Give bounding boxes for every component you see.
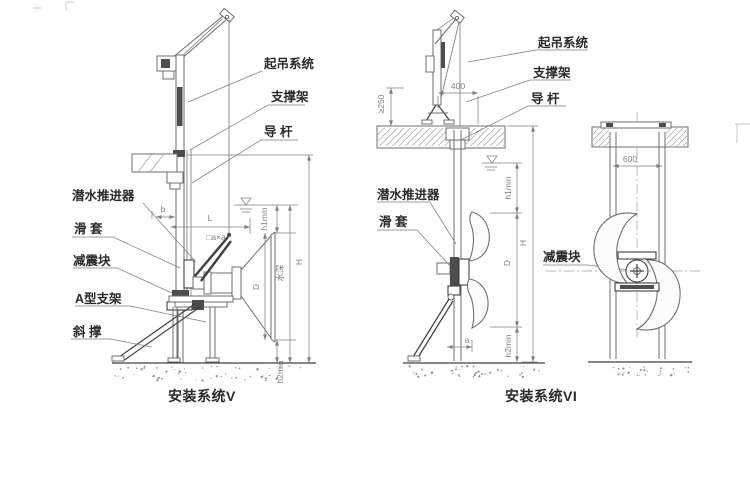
ground-v xyxy=(112,363,316,382)
crane-vi xyxy=(422,10,464,126)
propeller-v xyxy=(193,267,241,299)
caption-system-vi: 安装系统VI xyxy=(505,388,577,404)
dim-D-vi: D xyxy=(502,260,512,266)
ground-vi xyxy=(403,363,545,378)
dim-water-depth: 水深 xyxy=(275,264,285,282)
label-damper-vi: 减震块 xyxy=(543,249,581,264)
label-a-bracket-v: A型支架 xyxy=(75,291,122,306)
dim-h2min-vi: h2min xyxy=(503,334,513,357)
label-lifting-system-vi: 起吊系统 xyxy=(537,35,589,50)
propeller-vi xyxy=(437,212,489,328)
blade-lower-vi xyxy=(468,279,489,328)
dim-ge250: ≥250 xyxy=(376,94,386,113)
dim-D-v: D xyxy=(251,284,261,290)
dim-400: 400 xyxy=(451,81,465,91)
platform-v xyxy=(132,154,183,189)
label-guide-rod-v: 导 杆 xyxy=(264,124,293,139)
label-sleeve-vi: 滑 套 xyxy=(379,214,408,229)
brace-vi xyxy=(408,286,460,361)
system-v-drawing: b L □a×a h1min D 水深 H h2min 起吊系统 支撑架 导 杆… xyxy=(71,8,316,404)
label-brace-v: 斜 撑 xyxy=(72,324,102,339)
label-sleeve-v: 滑 套 xyxy=(74,221,103,236)
blade-upper-vi xyxy=(469,212,489,261)
sliding-sleeve-vi xyxy=(450,257,459,286)
caption-system-v: 安装系统V xyxy=(168,388,236,404)
dim-L: L xyxy=(208,213,213,223)
label-propeller-vi: 潜水推进器 xyxy=(377,187,440,202)
water-surface-vi xyxy=(482,156,522,170)
drawing-page: b L □a×a h1min D 水深 H h2min 起吊系统 支撑架 导 杆… xyxy=(0,0,750,480)
system-vi-drawing: 400 ≥250 h1min D h2min H a 起吊系统 支撑架 导 杆 … xyxy=(360,10,701,404)
dim-h1min-vi: h1min xyxy=(503,176,513,199)
label-support-frame-v: 支撑架 xyxy=(270,89,309,104)
dim-H-vi: H xyxy=(518,240,528,246)
dim-H-v: H xyxy=(294,259,304,265)
label-propeller-v: 潜水推进器 xyxy=(72,188,135,203)
dim-h1min-v: h1min xyxy=(259,207,269,230)
dim-600: 600 xyxy=(623,154,637,164)
rod-mount-bracket xyxy=(446,128,469,140)
winch-vi xyxy=(441,42,445,68)
label-lifting-system-v: 起吊系统 xyxy=(263,56,315,71)
front-view-vi: 600 xyxy=(546,112,701,376)
label-support-frame-vi: 支撑架 xyxy=(532,65,571,80)
technical-drawing: b L □a×a h1min D 水深 H h2min 起吊系统 支撑架 导 杆… xyxy=(0,0,750,480)
dim-h2min-v: h2min xyxy=(275,360,285,383)
dim-b: b xyxy=(161,204,166,214)
label-damper-v: 减震块 xyxy=(73,253,111,268)
guide-rod-vi xyxy=(454,130,461,361)
crane-v xyxy=(157,8,234,233)
dim-a: a xyxy=(465,335,470,345)
post-rail-strip xyxy=(177,87,183,126)
label-guide-rod-vi: 导 杆 xyxy=(531,91,560,106)
deck-slab-vi xyxy=(360,126,521,149)
labels-vi: 起吊系统 支撑架 导 杆 潜水推进器 滑 套 减震块 xyxy=(377,35,629,270)
hub-mount-upper xyxy=(618,252,656,259)
dim-axa: □a×a xyxy=(206,232,226,242)
support-post-v xyxy=(173,55,185,363)
